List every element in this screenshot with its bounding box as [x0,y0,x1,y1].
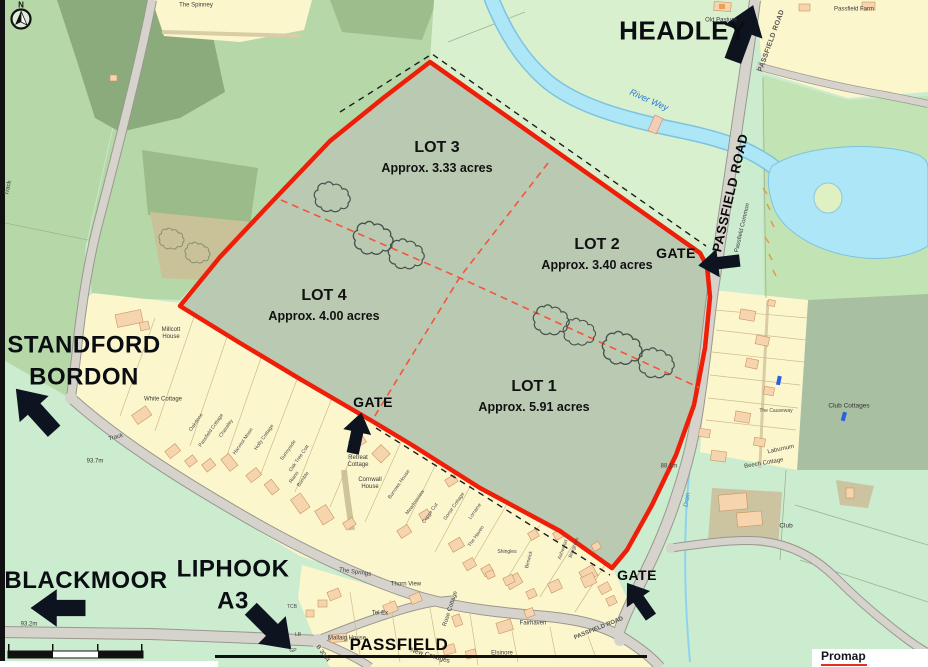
map-frame-left [0,0,5,661]
promap-logo: Promap [812,649,928,667]
map-frame-bottom [215,655,647,658]
margin [0,661,218,667]
field-dark [797,294,928,470]
promap-logo-text: Promap [821,650,928,662]
promap-logo-accent [821,664,867,667]
sale-plan-map: NThe SpinneyPassfield FarmOld PasturePAS… [0,0,928,667]
pond-island [814,183,842,213]
building-roof [719,4,725,9]
map-canvas [0,0,928,667]
compass-icon [12,10,31,29]
